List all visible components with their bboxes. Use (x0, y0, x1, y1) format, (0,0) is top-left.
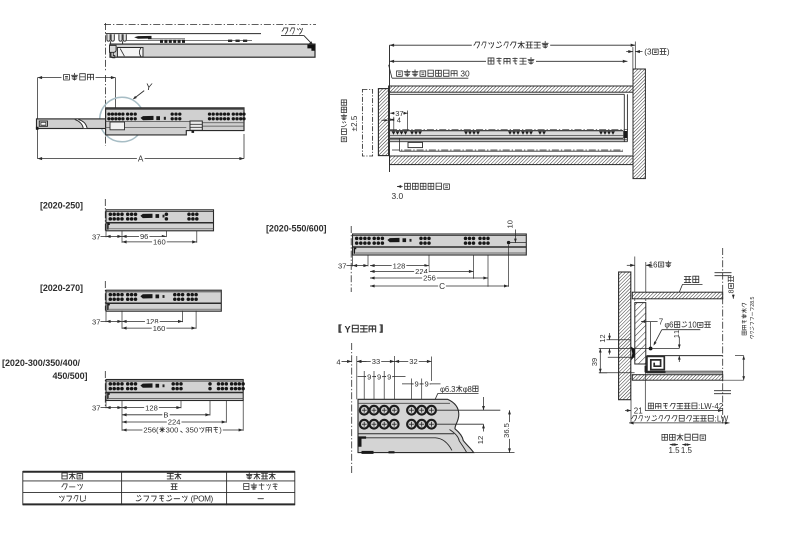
svg-text:96: 96 (140, 232, 148, 241)
svg-text:3.0: 3.0 (392, 191, 404, 201)
svg-text:9: 9 (387, 372, 391, 381)
svg-text:10: 10 (688, 321, 697, 330)
svg-text:9: 9 (377, 372, 381, 381)
svg-text:30: 30 (460, 69, 470, 79)
svg-text:33: 33 (372, 357, 380, 366)
svg-text:450/500]: 450/500] (52, 371, 87, 381)
svg-text:C: C (439, 282, 445, 291)
svg-text:11: 11 (672, 330, 681, 338)
svg-text:A: A (138, 155, 144, 164)
svg-text:16: 16 (649, 260, 658, 269)
svg-text:[2020-300/350/400/: [2020-300/350/400/ (2, 358, 81, 368)
svg-text:9: 9 (367, 372, 371, 381)
svg-text:300: 300 (166, 426, 179, 435)
svg-text:[2020-270]: [2020-270] (40, 283, 83, 293)
svg-text:160: 160 (153, 324, 166, 333)
svg-text:128: 128 (393, 261, 406, 270)
svg-text:39: 39 (590, 358, 599, 366)
svg-text:): ) (667, 48, 670, 57)
svg-text:256(: 256( (143, 426, 159, 435)
svg-text:37: 37 (92, 317, 100, 326)
svg-text:(3: (3 (644, 48, 652, 57)
svg-text:(POM): (POM) (191, 495, 214, 504)
svg-text:1.5: 1.5 (681, 446, 693, 455)
svg-text:φ6.3: φ6.3 (440, 385, 456, 394)
svg-text:4: 4 (397, 116, 401, 125)
svg-text:21: 21 (634, 407, 643, 416)
svg-text:256: 256 (423, 274, 436, 283)
svg-text:9: 9 (414, 380, 418, 389)
svg-text:12: 12 (476, 436, 485, 444)
svg-text:±2.5: ±2.5 (350, 115, 359, 131)
svg-text:4: 4 (336, 357, 340, 366)
svg-text:10: 10 (506, 220, 515, 228)
svg-text:37: 37 (92, 404, 100, 413)
svg-text:Y: Y (146, 82, 153, 93)
svg-text:7: 7 (659, 318, 664, 327)
svg-text:28.5: 28.5 (750, 296, 756, 306)
svg-text:128: 128 (145, 403, 158, 412)
svg-text:37: 37 (92, 232, 100, 241)
svg-text:36.5: 36.5 (502, 423, 511, 438)
svg-text:37: 37 (338, 262, 346, 271)
svg-text:[2020-550/600]: [2020-550/600] (266, 224, 327, 234)
svg-text:350: 350 (185, 426, 198, 435)
svg-text:φ6: φ6 (665, 321, 674, 330)
svg-text:[2020-250]: [2020-250] (40, 201, 83, 211)
svg-text:1.5: 1.5 (668, 446, 680, 455)
svg-text:φ8: φ8 (463, 385, 472, 394)
svg-text:160: 160 (153, 238, 166, 247)
svg-text:32: 32 (409, 357, 417, 366)
svg-text:8: 8 (727, 289, 736, 293)
svg-text:9: 9 (424, 380, 428, 389)
svg-text:12: 12 (598, 334, 607, 342)
svg-text:Y: Y (345, 324, 351, 334)
